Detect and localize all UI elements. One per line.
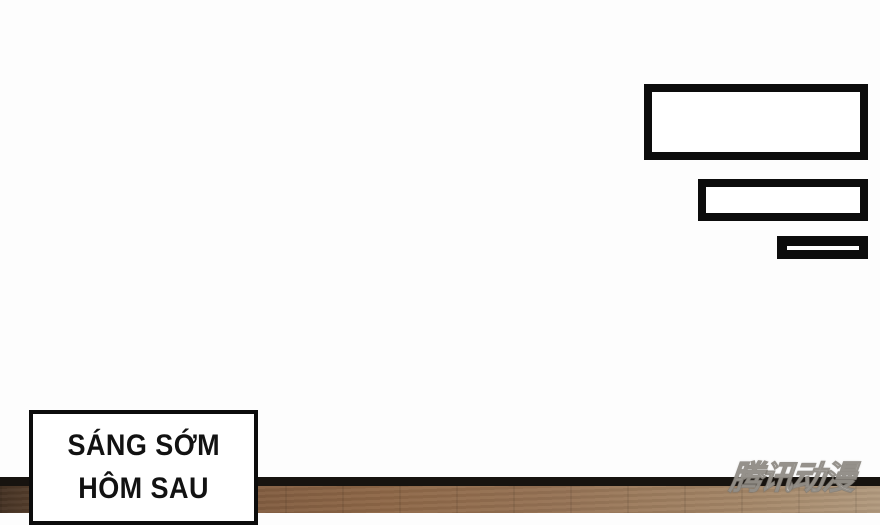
tencent-comics-watermark: 腾讯动漫 xyxy=(716,449,867,501)
caption-line-1: SÁNG SỚM xyxy=(67,424,220,467)
caption-line-2: HÔM SAU xyxy=(78,467,209,510)
caption-box: SÁNG SỚM HÔM SAU xyxy=(29,410,258,525)
empty-panel-frame-small xyxy=(777,236,868,259)
empty-panel-frame-large xyxy=(644,84,868,160)
comic-panel-page: SÁNG SỚM HÔM SAU 腾讯动漫 xyxy=(0,0,880,513)
empty-panel-frame-medium xyxy=(698,179,868,221)
frame-inner-slit xyxy=(787,246,859,250)
